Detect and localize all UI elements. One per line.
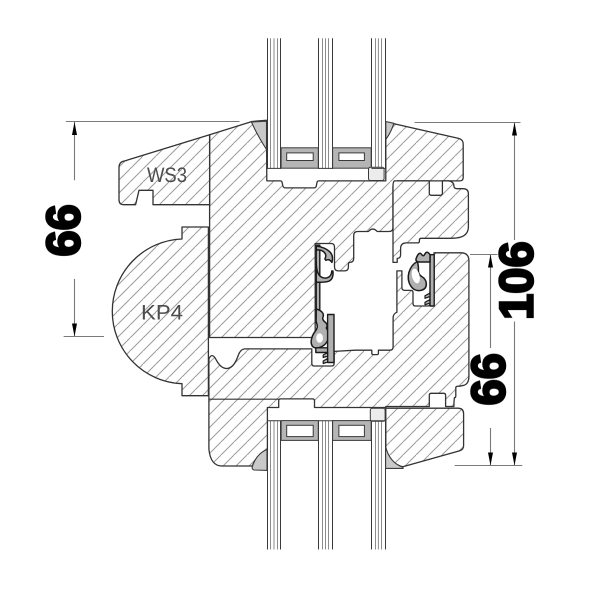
svg-text:WS3: WS3 — [147, 164, 187, 187]
svg-text:66: 66 — [37, 204, 90, 256]
svg-text:106: 106 — [490, 241, 543, 319]
svg-text:66: 66 — [462, 353, 515, 405]
svg-text:KP4: KP4 — [141, 301, 183, 324]
